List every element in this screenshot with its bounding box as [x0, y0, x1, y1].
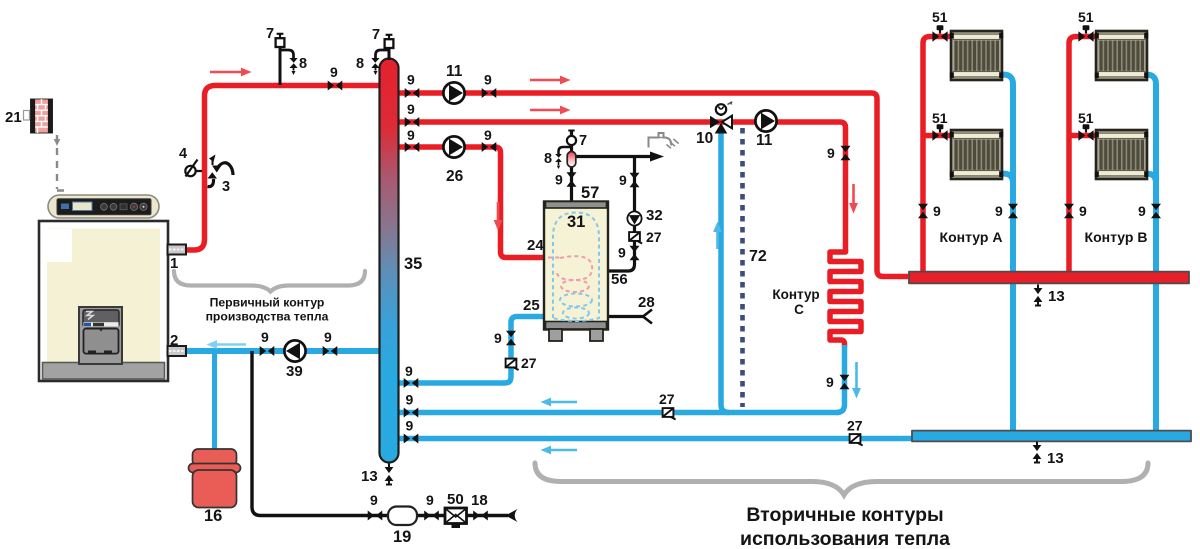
- svg-text:16: 16: [204, 507, 222, 525]
- svg-text:Первичный контур: Первичный контур: [210, 296, 325, 310]
- svg-text:9: 9: [494, 330, 502, 346]
- svg-text:использования тепла: использования тепла: [740, 528, 950, 549]
- svg-text:производства тепла: производства тепла: [206, 310, 329, 324]
- svg-text:13: 13: [1048, 288, 1065, 305]
- svg-text:26: 26: [446, 168, 464, 185]
- svg-text:2: 2: [170, 332, 178, 349]
- svg-text:51: 51: [932, 110, 948, 126]
- svg-text:9: 9: [827, 145, 835, 161]
- svg-text:28: 28: [638, 294, 655, 311]
- svg-text:9: 9: [407, 101, 415, 117]
- svg-text:9: 9: [407, 127, 415, 143]
- svg-text:9: 9: [484, 127, 492, 143]
- svg-text:9: 9: [406, 418, 414, 434]
- svg-text:9: 9: [933, 203, 941, 219]
- svg-text:31: 31: [567, 213, 585, 231]
- svg-text:9: 9: [1079, 203, 1087, 219]
- svg-text:1: 1: [170, 255, 178, 272]
- svg-text:9: 9: [618, 245, 626, 261]
- svg-text:7: 7: [372, 27, 380, 43]
- svg-text:13: 13: [361, 468, 378, 485]
- svg-text:27: 27: [646, 229, 662, 245]
- svg-text:Контур B: Контур B: [1085, 229, 1148, 245]
- svg-text:25: 25: [523, 297, 540, 314]
- svg-text:9: 9: [1138, 203, 1146, 219]
- svg-text:8: 8: [544, 151, 552, 167]
- svg-text:С: С: [794, 302, 804, 317]
- svg-text:10: 10: [696, 130, 713, 147]
- svg-text:Контур: Контур: [772, 287, 819, 302]
- svg-text:9: 9: [619, 172, 627, 188]
- svg-text:50: 50: [447, 491, 464, 508]
- svg-text:11: 11: [756, 132, 773, 149]
- svg-text:11: 11: [446, 63, 463, 80]
- svg-text:8: 8: [299, 56, 307, 72]
- svg-text:9: 9: [555, 172, 563, 188]
- svg-text:51: 51: [932, 9, 948, 25]
- svg-text:56: 56: [611, 271, 628, 288]
- svg-text:19: 19: [393, 528, 411, 546]
- svg-text:9: 9: [330, 64, 338, 80]
- svg-text:57: 57: [581, 184, 599, 202]
- svg-text:4: 4: [179, 146, 187, 162]
- svg-text:7: 7: [266, 26, 274, 42]
- svg-text:27: 27: [659, 391, 675, 407]
- svg-text:24: 24: [527, 237, 544, 254]
- svg-text:39: 39: [286, 363, 303, 380]
- svg-text:27: 27: [847, 418, 863, 434]
- svg-text:Контур A: Контур A: [940, 229, 1003, 245]
- svg-text:9: 9: [370, 492, 378, 508]
- svg-text:21: 21: [5, 109, 22, 126]
- svg-text:7: 7: [579, 133, 587, 149]
- svg-text:51: 51: [1078, 9, 1094, 25]
- svg-text:9: 9: [406, 392, 414, 408]
- svg-text:Вторичные контуры: Вторичные контуры: [746, 504, 943, 526]
- svg-text:9: 9: [407, 72, 415, 88]
- svg-text:9: 9: [484, 72, 492, 88]
- svg-text:8: 8: [356, 56, 364, 72]
- svg-text:9: 9: [826, 374, 834, 390]
- svg-text:51: 51: [1078, 110, 1094, 126]
- svg-text:9: 9: [405, 363, 413, 379]
- svg-text:32: 32: [646, 207, 663, 224]
- svg-text:27: 27: [521, 355, 537, 371]
- svg-text:9: 9: [261, 329, 269, 345]
- svg-text:9: 9: [426, 492, 434, 508]
- svg-text:3: 3: [222, 179, 230, 195]
- svg-text:72: 72: [749, 248, 767, 265]
- svg-text:9: 9: [995, 203, 1003, 219]
- svg-text:18: 18: [471, 492, 488, 509]
- svg-text:9: 9: [324, 329, 332, 345]
- svg-text:35: 35: [404, 255, 422, 273]
- svg-text:13: 13: [1047, 450, 1064, 467]
